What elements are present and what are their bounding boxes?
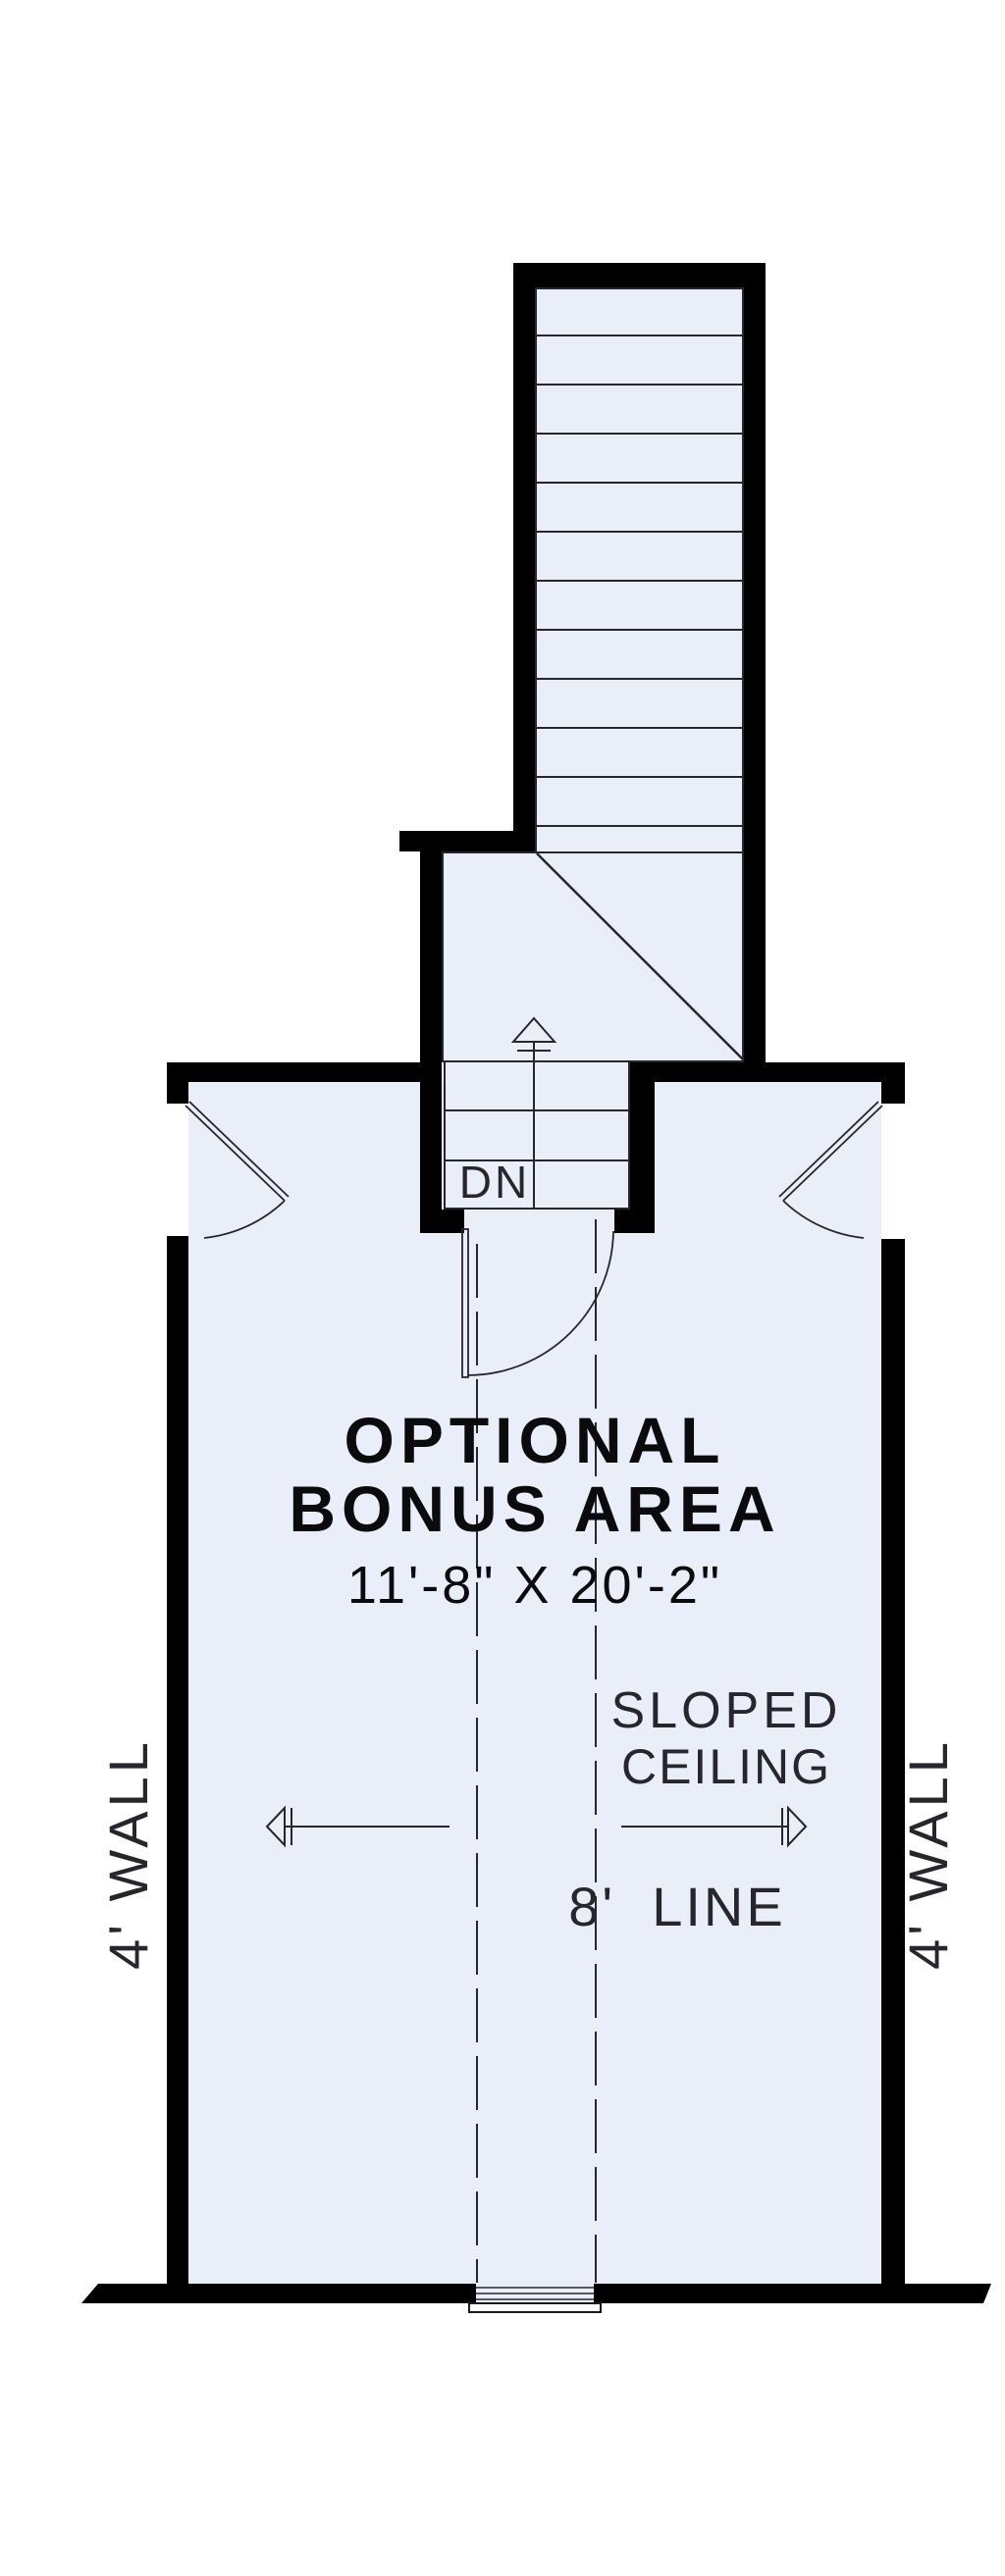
left-knee-wall-label: 4' WALL [99, 1731, 156, 1977]
stair-down-label: DN [453, 1159, 536, 1205]
landing-winder-diagonal [537, 853, 743, 1059]
ceiling-height-arrow-left [267, 1808, 450, 1845]
door-swing-top-left [185, 1102, 289, 1238]
stairwell-door-swing [462, 1229, 613, 1377]
room-title-line1: OPTIONAL [191, 1408, 878, 1472]
plan-linework [0, 0, 1005, 2576]
ceiling-height-arrow-right [621, 1808, 806, 1845]
door-swing-top-right [779, 1102, 882, 1238]
right-knee-wall-label: 4' WALL [899, 1731, 956, 1977]
eight-foot-line-label: 8' LINE [545, 1880, 810, 1934]
room-title-line2: BONUS AREA [191, 1476, 878, 1541]
sloped-ceiling-label-line1: SLOPED [589, 1685, 864, 1736]
floor-plan-canvas: DN OPTIONAL BONUS AREA 11'-8" X 20'-2" S… [0, 0, 1005, 2576]
stair-treads-lower [444, 1110, 630, 1160]
bottom-window-panes [476, 2288, 594, 2299]
sloped-ceiling-label-line2: CEILING [589, 1742, 864, 1791]
room-dimensions: 11'-8" X 20'-2" [191, 1559, 878, 1612]
stair-treads-upper [537, 335, 742, 826]
